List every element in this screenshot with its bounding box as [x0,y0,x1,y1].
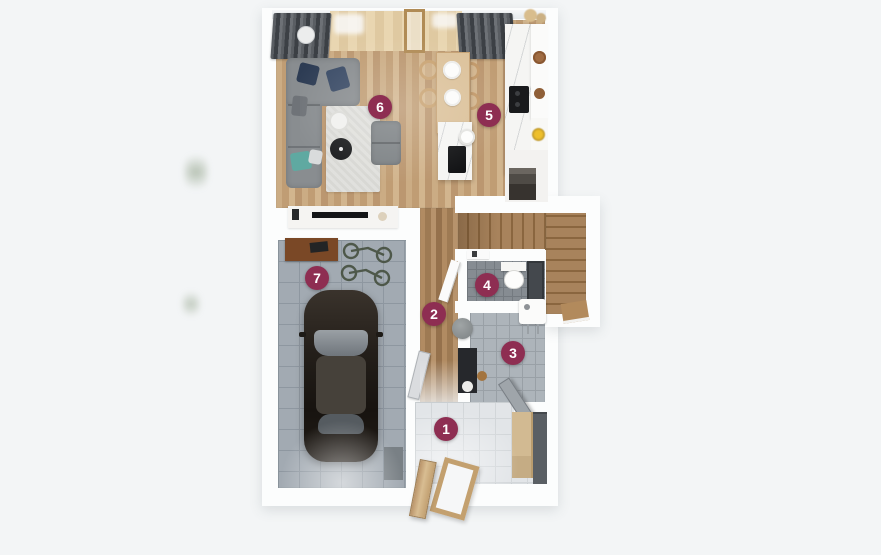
kitchen-upper-cabinet [531,24,548,120]
hall-side-table [452,318,473,339]
coffee-table-white [329,111,349,131]
staircase-lower-flight [458,212,546,250]
floor-lamp [297,26,315,44]
cutting-board [533,51,546,64]
car-mirror [376,332,383,337]
cooktop [509,86,529,113]
room-marker-3[interactable]: 3 [501,341,525,365]
island-sink [448,146,466,173]
car-mirror [299,332,306,337]
bicycles [338,238,402,288]
stair-step-stool [561,300,590,324]
place-setting [443,61,461,79]
garage-storage [384,447,403,480]
floor-plan-canvas: 1234567 [0,0,881,555]
pillow-white [308,149,323,165]
basket [524,9,537,22]
tree-foliage [182,288,200,320]
sofa-cushion-gap [288,146,320,148]
basket [536,13,546,23]
car-roof [316,356,366,414]
boiler-pipe [527,324,529,334]
cooktop-burner [515,102,520,107]
toilet-bowl [504,270,524,289]
room-marker-7[interactable]: 7 [305,266,329,290]
tree-foliage [184,150,208,194]
tv-screen [312,212,368,218]
wardrobe-shelving [533,412,547,484]
room-marker-6[interactable]: 6 [368,95,392,119]
ottoman-gap [372,142,400,144]
terrace-lounge [432,13,458,28]
boiler [519,299,546,324]
boiler-dial [524,304,530,310]
room-marker-2[interactable]: 2 [422,302,446,326]
room-marker-4[interactable]: 4 [475,273,499,297]
hall-wood-bowl [477,371,487,381]
wardrobe-wood [512,412,533,478]
balcony-door-frame [404,9,425,53]
pillow-gray [291,95,308,116]
island-bowl [459,129,475,145]
terrace-lounge [334,14,364,34]
cooktop-burner [515,91,520,96]
sunflowers [532,128,545,141]
bathroom-shelf-item [472,251,477,257]
car-rear-window [318,414,364,434]
bathroom-shelf [467,250,489,259]
cabinet-niche [509,168,536,200]
cutting-board [534,88,545,99]
boiler-pipe [537,324,539,334]
car-windshield [314,330,368,356]
place-setting [444,89,461,106]
shower-unit [527,261,544,302]
hall-vase [462,381,473,392]
tv-side-speaker [292,209,299,220]
candle-decor [378,212,387,221]
room-marker-5[interactable]: 5 [477,103,501,127]
staircase-upper-flight [546,212,586,314]
coffee-table-black-dot [339,147,343,151]
workbench-tool [310,241,329,253]
room-marker-1[interactable]: 1 [434,417,458,441]
